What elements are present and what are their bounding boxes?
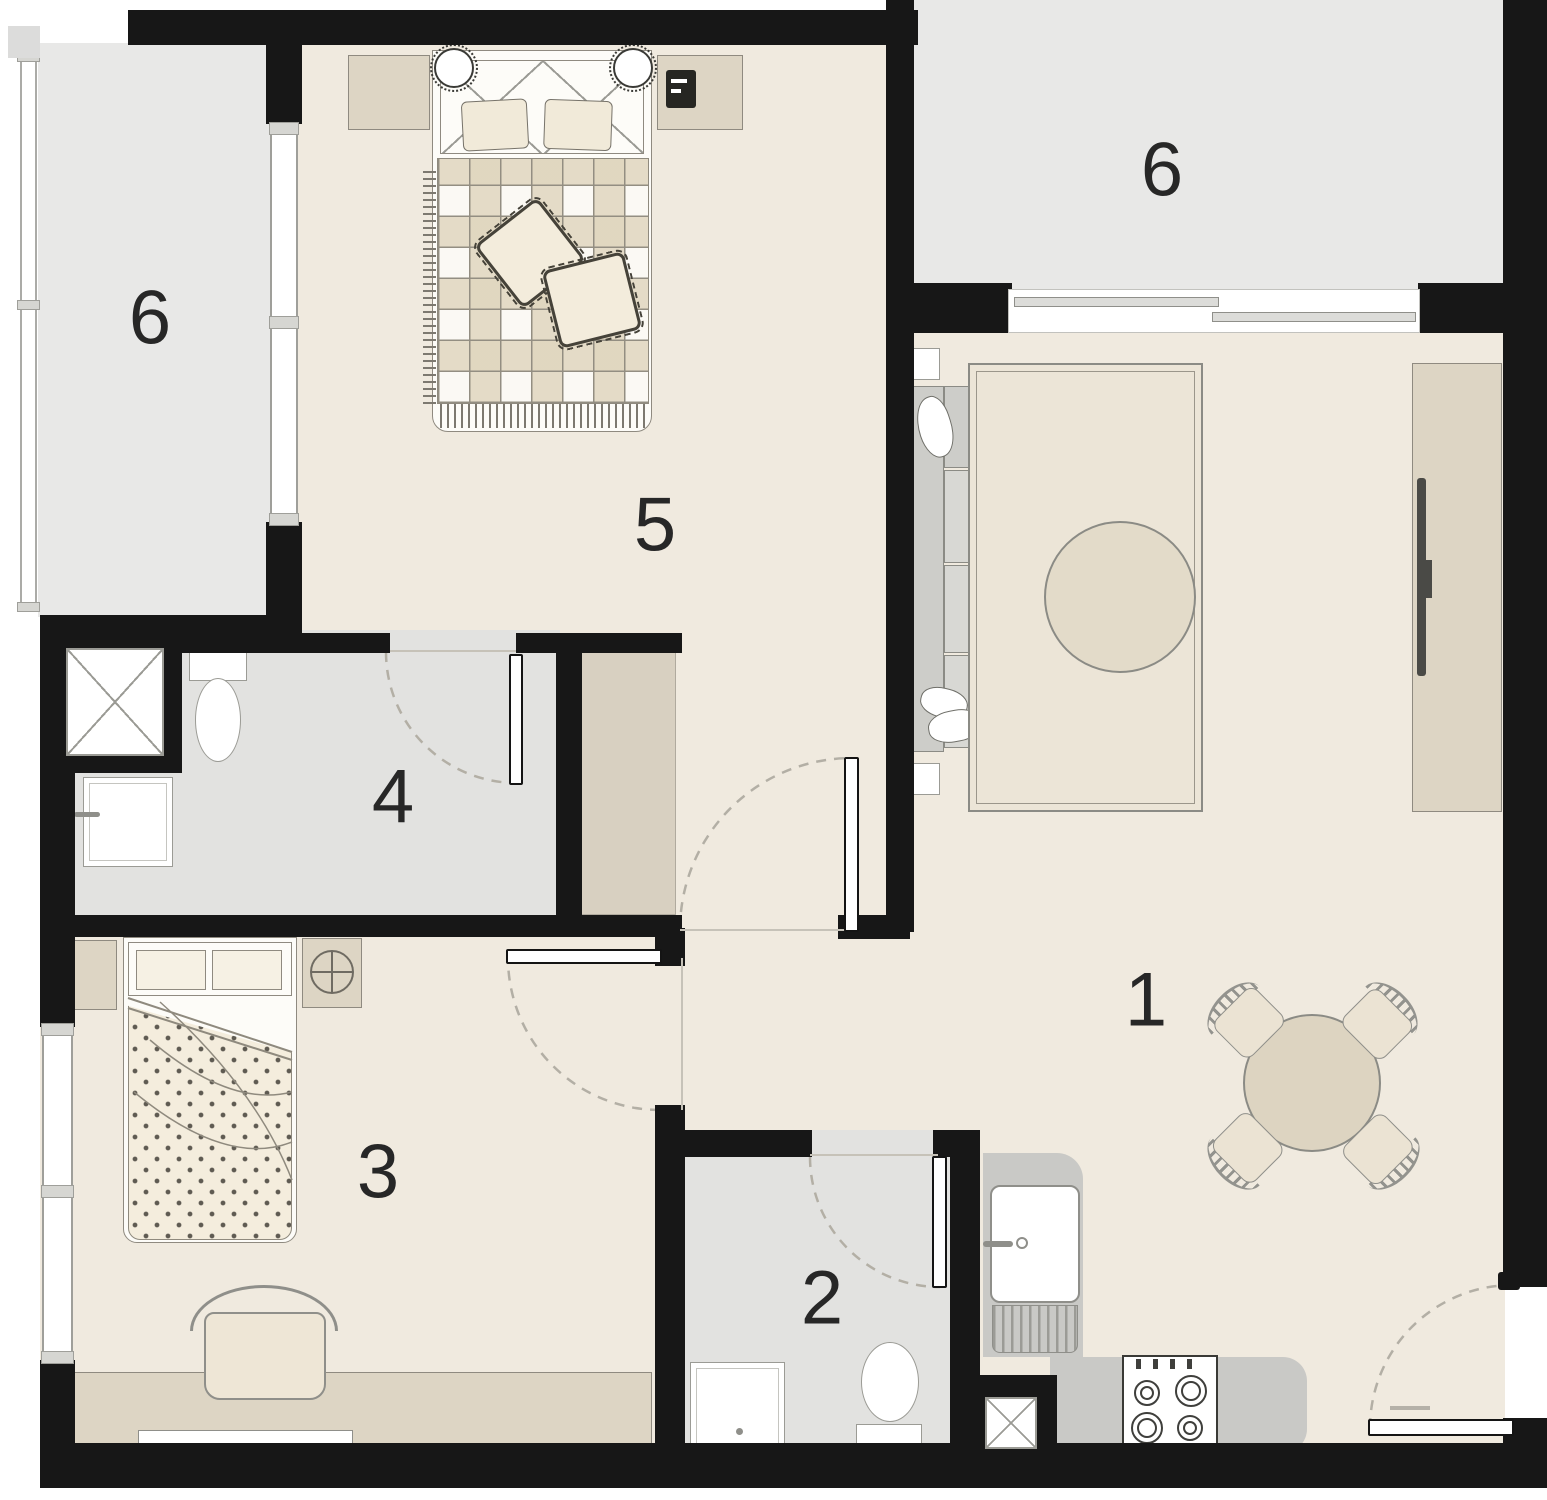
threshold [680, 929, 845, 931]
door-leaf-bathroom-4 [509, 654, 523, 785]
door-leaf-hall [844, 757, 859, 932]
wall [1418, 283, 1508, 333]
sliding-window-pane [1212, 312, 1416, 322]
wall [40, 1360, 75, 1455]
door-hinge-nub [1498, 1272, 1520, 1290]
wall [40, 1443, 1547, 1488]
wall [886, 0, 914, 932]
sliding-window-pane [1014, 297, 1219, 307]
threshold [390, 650, 516, 652]
window-bedroom-5 [270, 124, 298, 524]
railing-cap [17, 300, 40, 310]
duvet-seam [150, 1040, 292, 1095]
floor-plan: 1 2 3 4 5 6 6 [0, 0, 1547, 1500]
door-swing-arcs [0, 0, 1547, 1500]
door-leaf-bedroom-3 [506, 949, 662, 964]
wall [655, 1130, 812, 1157]
door-arc-bedroom-3 [508, 958, 660, 1110]
window-bedroom-3 [42, 1025, 73, 1362]
room-label-bathroom-2: 2 [801, 1255, 843, 1342]
threshold [681, 958, 683, 1110]
wall [886, 283, 1012, 333]
duvet-fold-line [128, 998, 292, 1052]
wall [1503, 0, 1547, 1287]
door-arc-hall [680, 758, 852, 930]
room-label-balcony-right: 6 [1141, 127, 1183, 214]
railing-cap [17, 602, 40, 612]
wall [655, 1105, 685, 1460]
room-label-balcony-left: 6 [129, 275, 171, 362]
room-label-bathroom-4: 4 [372, 754, 414, 841]
ventilation-shaft-icon [66, 648, 164, 756]
duvet-seam [134, 1092, 292, 1149]
wall [516, 633, 682, 653]
room-label-bedroom-5: 5 [634, 482, 676, 569]
entrance-label-mark [1390, 1406, 1430, 1410]
balcony-corner-stub [8, 26, 40, 58]
room-label-living: 1 [1125, 957, 1167, 1044]
balcony-railing [20, 52, 37, 612]
duvet-seam [160, 1002, 292, 1180]
sliding-window-living [1008, 289, 1420, 333]
ventilation-shaft-icon [985, 1397, 1037, 1449]
wall [556, 650, 582, 918]
wall [128, 10, 918, 45]
door-leaf-bathroom-2 [932, 1156, 947, 1288]
threshold [810, 1154, 938, 1156]
wall [266, 10, 302, 124]
room-label-bedroom-3: 3 [357, 1129, 399, 1216]
wall [40, 915, 682, 937]
door-leaf-entrance [1368, 1419, 1514, 1436]
